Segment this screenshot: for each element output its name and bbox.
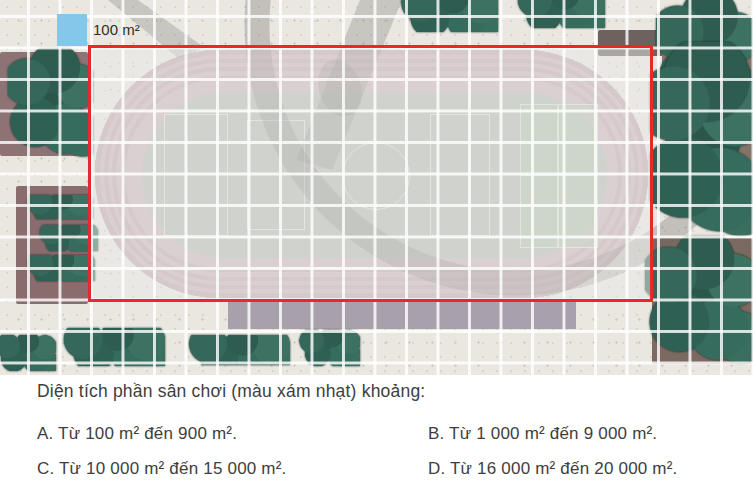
option-C[interactable]: C. Từ 10 000 m² đến 15 000 m². xyxy=(37,459,287,479)
legend-unit-square xyxy=(57,14,87,46)
option-D[interactable]: D. Từ 16 000 m² đến 20 000 m². xyxy=(428,459,678,479)
legend-label: 100 m² xyxy=(93,21,140,38)
exercise-page: 100 m² Diện tích phần sân chơi (màu xám … xyxy=(0,0,753,494)
map-illustration: 100 m² xyxy=(0,0,753,375)
question-text: Diện tích phần sân chơi (màu xám nhạt) k… xyxy=(37,381,425,402)
option-A[interactable]: A. Từ 100 m² đến 900 m². xyxy=(37,424,237,444)
option-B[interactable]: B. Từ 1 000 m² đến 9 000 m². xyxy=(428,424,657,444)
measured-area-outline xyxy=(88,45,653,302)
